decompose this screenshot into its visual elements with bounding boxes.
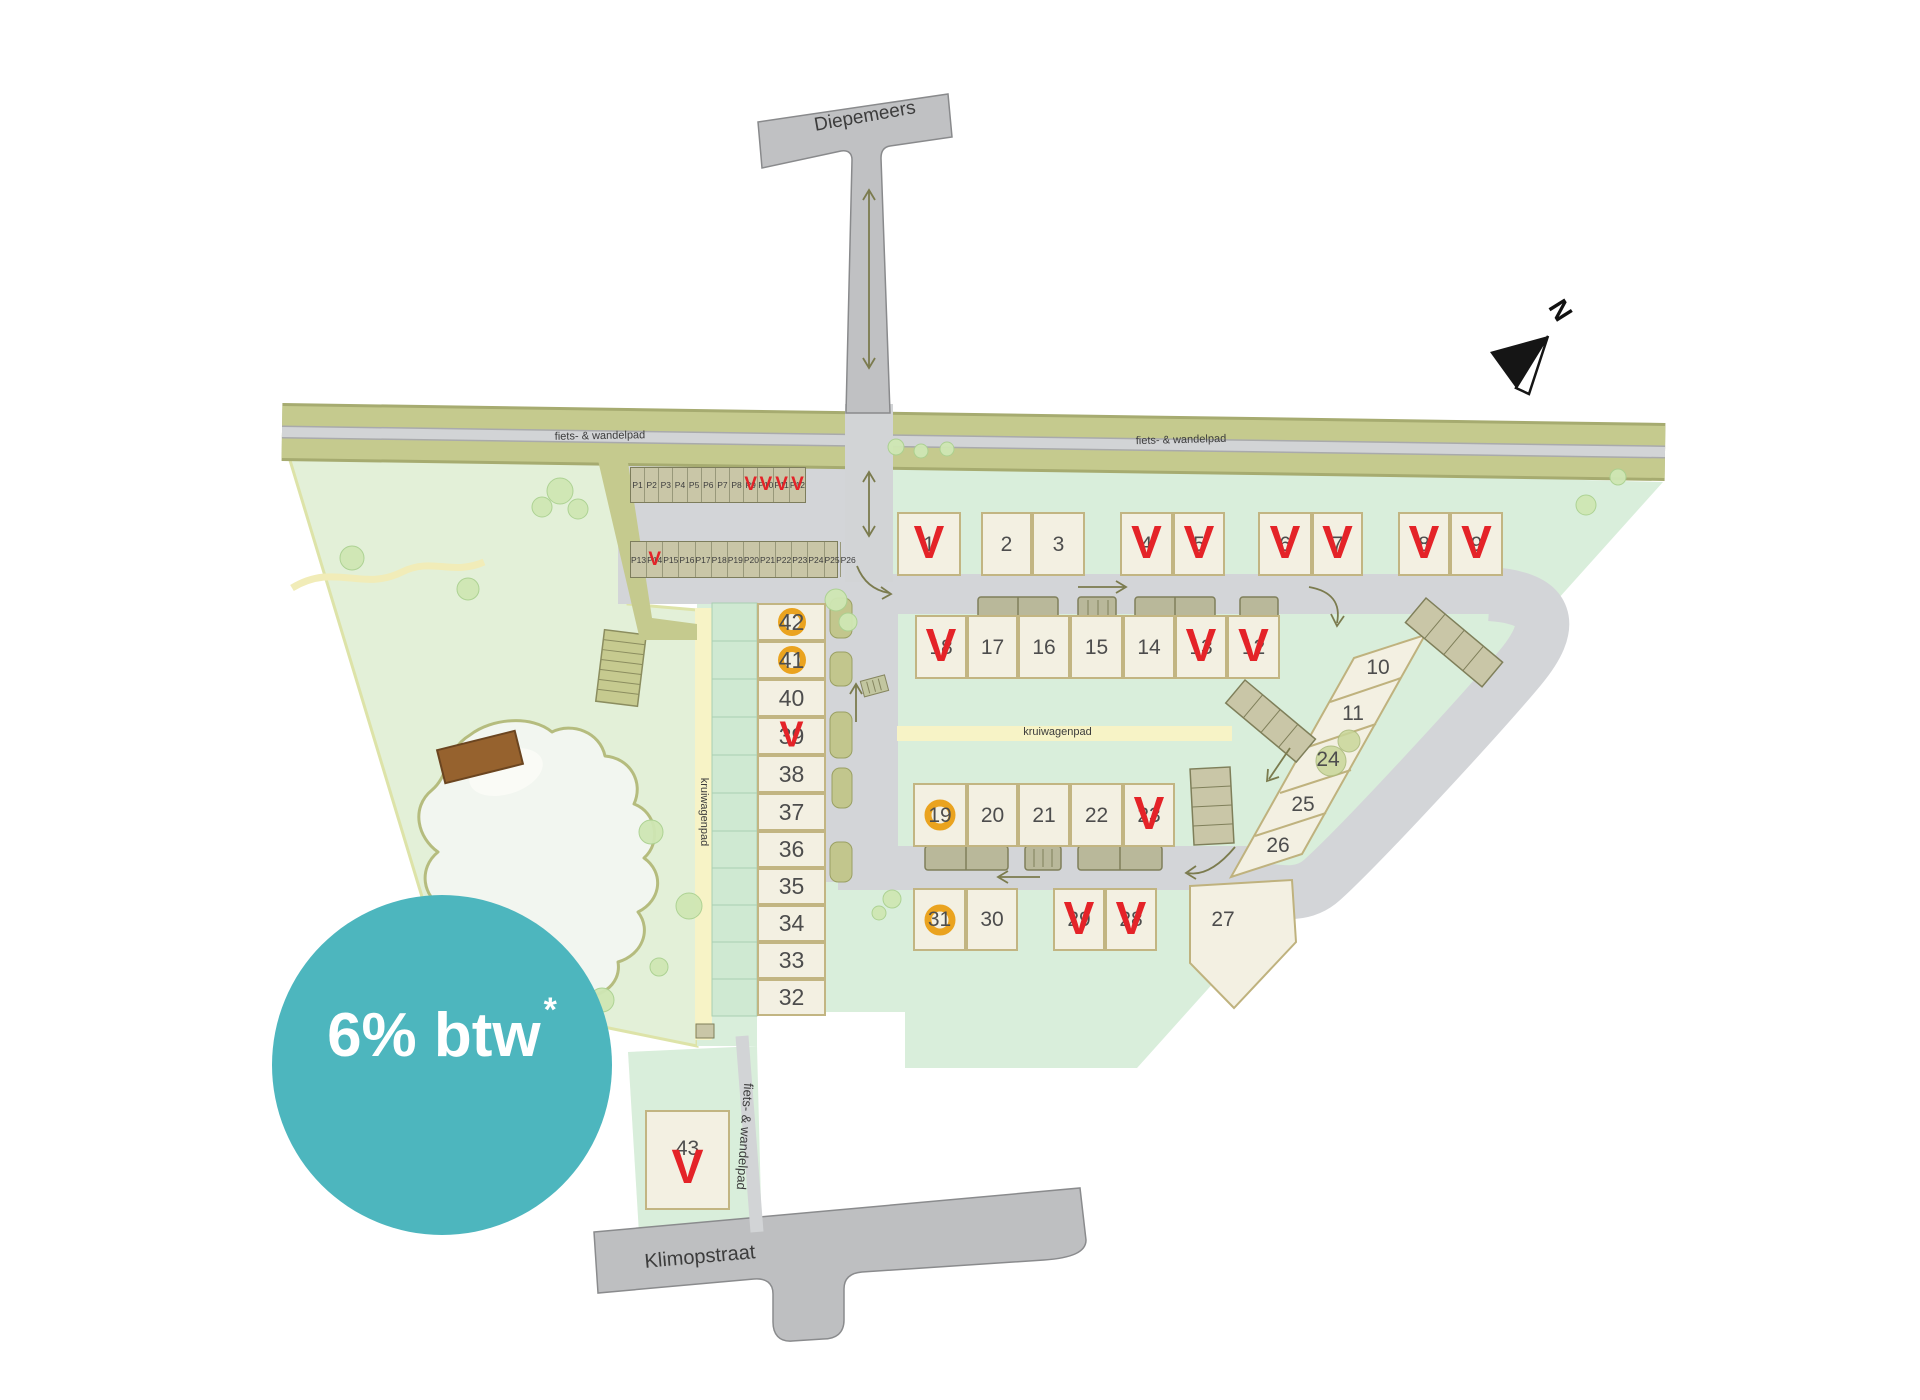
lot-number: 26 (1266, 835, 1289, 856)
sold-mark: V (1186, 622, 1217, 668)
lot-40[interactable]: 40 (757, 679, 826, 717)
parking-label: P22 (776, 555, 791, 565)
lot-27[interactable]: 27 (1192, 896, 1254, 942)
sold-mark: V (779, 717, 803, 753)
lot-15[interactable]: 15 (1070, 615, 1123, 679)
lot-23[interactable]: 23V (1123, 783, 1175, 847)
lot-number: 32 (779, 986, 805, 1009)
lot-3[interactable]: 3 (1032, 512, 1085, 576)
lot-38[interactable]: 38 (757, 755, 826, 793)
parking-label: P7 (717, 480, 727, 490)
sold-mark: V (914, 519, 945, 565)
lot-5[interactable]: 5V (1173, 512, 1225, 576)
parking-label: P6 (703, 480, 713, 490)
sold-mark: V (744, 475, 757, 494)
parking-label: P25 (825, 555, 840, 565)
lot-12[interactable]: 12V (1227, 615, 1280, 679)
parking-label: P13 (631, 555, 646, 565)
parking-P6[interactable]: P6 (701, 468, 715, 502)
lot-number: 41 (779, 649, 805, 672)
parking-P20[interactable]: P20 (743, 542, 759, 577)
parking-P10[interactable]: P10V (757, 468, 773, 502)
parking-P18[interactable]: P18 (711, 542, 727, 577)
sold-mark: V (1461, 519, 1492, 565)
sold-mark: V (1184, 519, 1215, 565)
lot-number: 11 (1342, 703, 1364, 724)
parking-P15[interactable]: P15 (662, 542, 678, 577)
lot-number: 14 (1137, 637, 1160, 658)
lot-9[interactable]: 9V (1450, 512, 1503, 576)
parking-P1[interactable]: P1 (631, 468, 644, 502)
parking-P24[interactable]: P24 (807, 542, 823, 577)
lot-number: 37 (779, 801, 805, 824)
parking-label: P16 (679, 555, 694, 565)
lot-number: 21 (1032, 805, 1055, 826)
lot-20[interactable]: 20 (967, 783, 1018, 847)
barrow-path-label-horizontal: kruiwagenpad (1000, 726, 1115, 738)
parking-P3[interactable]: P3 (658, 468, 672, 502)
lot-number: 34 (779, 912, 805, 935)
parking-label: P23 (792, 555, 807, 565)
sold-mark: V (671, 1144, 703, 1192)
lot-41[interactable]: 41 (757, 641, 826, 679)
parking-P17[interactable]: P17 (695, 542, 711, 577)
parking-label: P8 (731, 480, 741, 490)
lot-33[interactable]: 33 (757, 942, 826, 979)
sold-mark: V (1064, 895, 1095, 941)
lot-number: 33 (779, 949, 805, 972)
lot-18[interactable]: 18V (915, 615, 967, 679)
parking-row-1: P1P2P3P4P5P6P7P8P9VP10VP11VP12V (630, 467, 806, 503)
parking-label: P18 (712, 555, 727, 565)
lot-number: 38 (779, 763, 805, 786)
lot-30[interactable]: 30 (966, 888, 1018, 951)
parking-P16[interactable]: P16 (678, 542, 694, 577)
lot-31[interactable]: 31 (913, 888, 966, 951)
lot-25[interactable]: 25 (1281, 784, 1325, 824)
sold-mark: V (1116, 895, 1147, 941)
barrow-path-label-vertical: kruiwagenpad (698, 756, 710, 868)
lot-39[interactable]: 39V (757, 717, 826, 755)
sold-mark: V (775, 475, 788, 494)
lot-1[interactable]: 1V (897, 512, 961, 576)
lot-number: 17 (981, 637, 1004, 658)
parking-label: P4 (675, 480, 685, 490)
lot-number: 3 (1053, 534, 1065, 555)
lot-number: 15 (1085, 637, 1108, 658)
parking-label: P26 (841, 555, 856, 565)
sold-mark: V (791, 475, 804, 494)
lot-32[interactable]: 32 (757, 979, 826, 1016)
lot-number: 31 (928, 909, 951, 930)
lot-42[interactable]: 42 (757, 603, 826, 641)
lot-24[interactable]: 24 (1306, 739, 1350, 779)
lot-37[interactable]: 37 (757, 793, 826, 831)
lot-17[interactable]: 17 (967, 615, 1018, 679)
parking-P11[interactable]: P11V (773, 468, 789, 502)
parking-P7[interactable]: P7 (715, 468, 729, 502)
parking-label: P24 (808, 555, 823, 565)
parking-P21[interactable]: P21 (759, 542, 775, 577)
vat-badge: 6% btw * (272, 895, 612, 1235)
lot-11[interactable]: 11 (1331, 693, 1375, 733)
parking-P14[interactable]: P14V (646, 542, 662, 577)
lot-number: 42 (779, 611, 805, 634)
lot-7[interactable]: 7V (1312, 512, 1363, 576)
parking-P12[interactable]: P12V (789, 468, 805, 502)
sold-mark: V (1409, 519, 1440, 565)
sold-mark: V (1270, 519, 1301, 565)
lot-28[interactable]: 28V (1105, 888, 1157, 951)
parking-P4[interactable]: P4 (672, 468, 686, 502)
lot-29[interactable]: 29V (1053, 888, 1105, 951)
lot-number: 36 (779, 838, 805, 861)
vat-badge-asterisk: * (544, 993, 557, 1027)
sold-mark: V (926, 622, 957, 668)
lot-21[interactable]: 21 (1018, 783, 1070, 847)
sold-mark: V (1322, 519, 1353, 565)
parking-P23[interactable]: P23 (791, 542, 807, 577)
lot-number: 35 (779, 875, 805, 898)
lot-number: 30 (980, 909, 1003, 930)
lot-26[interactable]: 26 (1256, 825, 1300, 865)
parking-P26[interactable]: P26 (840, 542, 856, 577)
lot-43[interactable]: 43V (645, 1110, 730, 1210)
lot-35[interactable]: 35 (757, 868, 826, 905)
parking-P22[interactable]: P22 (775, 542, 791, 577)
lot-34[interactable]: 34 (757, 905, 826, 942)
parking-P8[interactable]: P8 (729, 468, 743, 502)
lot-number: 27 (1211, 909, 1234, 930)
lot-16[interactable]: 16 (1018, 615, 1070, 679)
parking-label: P20 (744, 555, 759, 565)
lot-22[interactable]: 22 (1070, 783, 1123, 847)
lot-number: 24 (1316, 749, 1339, 770)
parking-label: P21 (760, 555, 775, 565)
parking-P5[interactable]: P5 (687, 468, 701, 502)
vat-badge-text: 6% btw (327, 1005, 541, 1067)
lot-10[interactable]: 10 (1356, 647, 1400, 687)
lot-number: 22 (1085, 805, 1108, 826)
lot-6[interactable]: 6V (1258, 512, 1312, 576)
sold-mark: V (1131, 519, 1162, 565)
sold-mark: V (1134, 790, 1165, 836)
lot-4[interactable]: 4V (1120, 512, 1173, 576)
sold-mark: V (648, 550, 661, 569)
parking-label: P2 (647, 480, 657, 490)
parking-P2[interactable]: P2 (644, 468, 658, 502)
lot-8[interactable]: 8V (1398, 512, 1450, 576)
parking-label: P5 (689, 480, 699, 490)
parking-label: P17 (696, 555, 711, 565)
parking-P9[interactable]: P9V (743, 468, 757, 502)
parking-P19[interactable]: P19 (727, 542, 743, 577)
lot-number: 16 (1032, 637, 1055, 658)
lot-number: 10 (1366, 657, 1389, 678)
parking-label: P19 (728, 555, 743, 565)
lot-number: 19 (928, 805, 951, 826)
lot-36[interactable]: 36 (757, 831, 826, 868)
parking-P25[interactable]: P25 (824, 542, 840, 577)
lot-number: 20 (981, 805, 1004, 826)
parking-P13[interactable]: P13 (631, 542, 646, 577)
lot-13[interactable]: 13V (1175, 615, 1227, 679)
lot-19[interactable]: 19 (913, 783, 967, 847)
parking-label: P3 (661, 480, 671, 490)
parking-row-2: P13P14VP15P16P17P18P19P20P21P22P23P24P25… (630, 541, 838, 578)
parking-label: P15 (663, 555, 678, 565)
lot-number: 25 (1291, 794, 1314, 815)
lot-number: 40 (779, 687, 805, 710)
lots-layer: 1V234V5V6V7V8V9V18V1716151413V12V1011242… (0, 0, 1920, 1400)
lot-14[interactable]: 14 (1123, 615, 1175, 679)
bike-path-label-left: fiets- & wandelpad (540, 429, 660, 443)
sold-mark: V (759, 475, 772, 494)
lot-number: 2 (1001, 534, 1013, 555)
sold-mark: V (1238, 622, 1269, 668)
lot-2[interactable]: 2 (981, 512, 1032, 576)
parking-label: P1 (632, 480, 642, 490)
